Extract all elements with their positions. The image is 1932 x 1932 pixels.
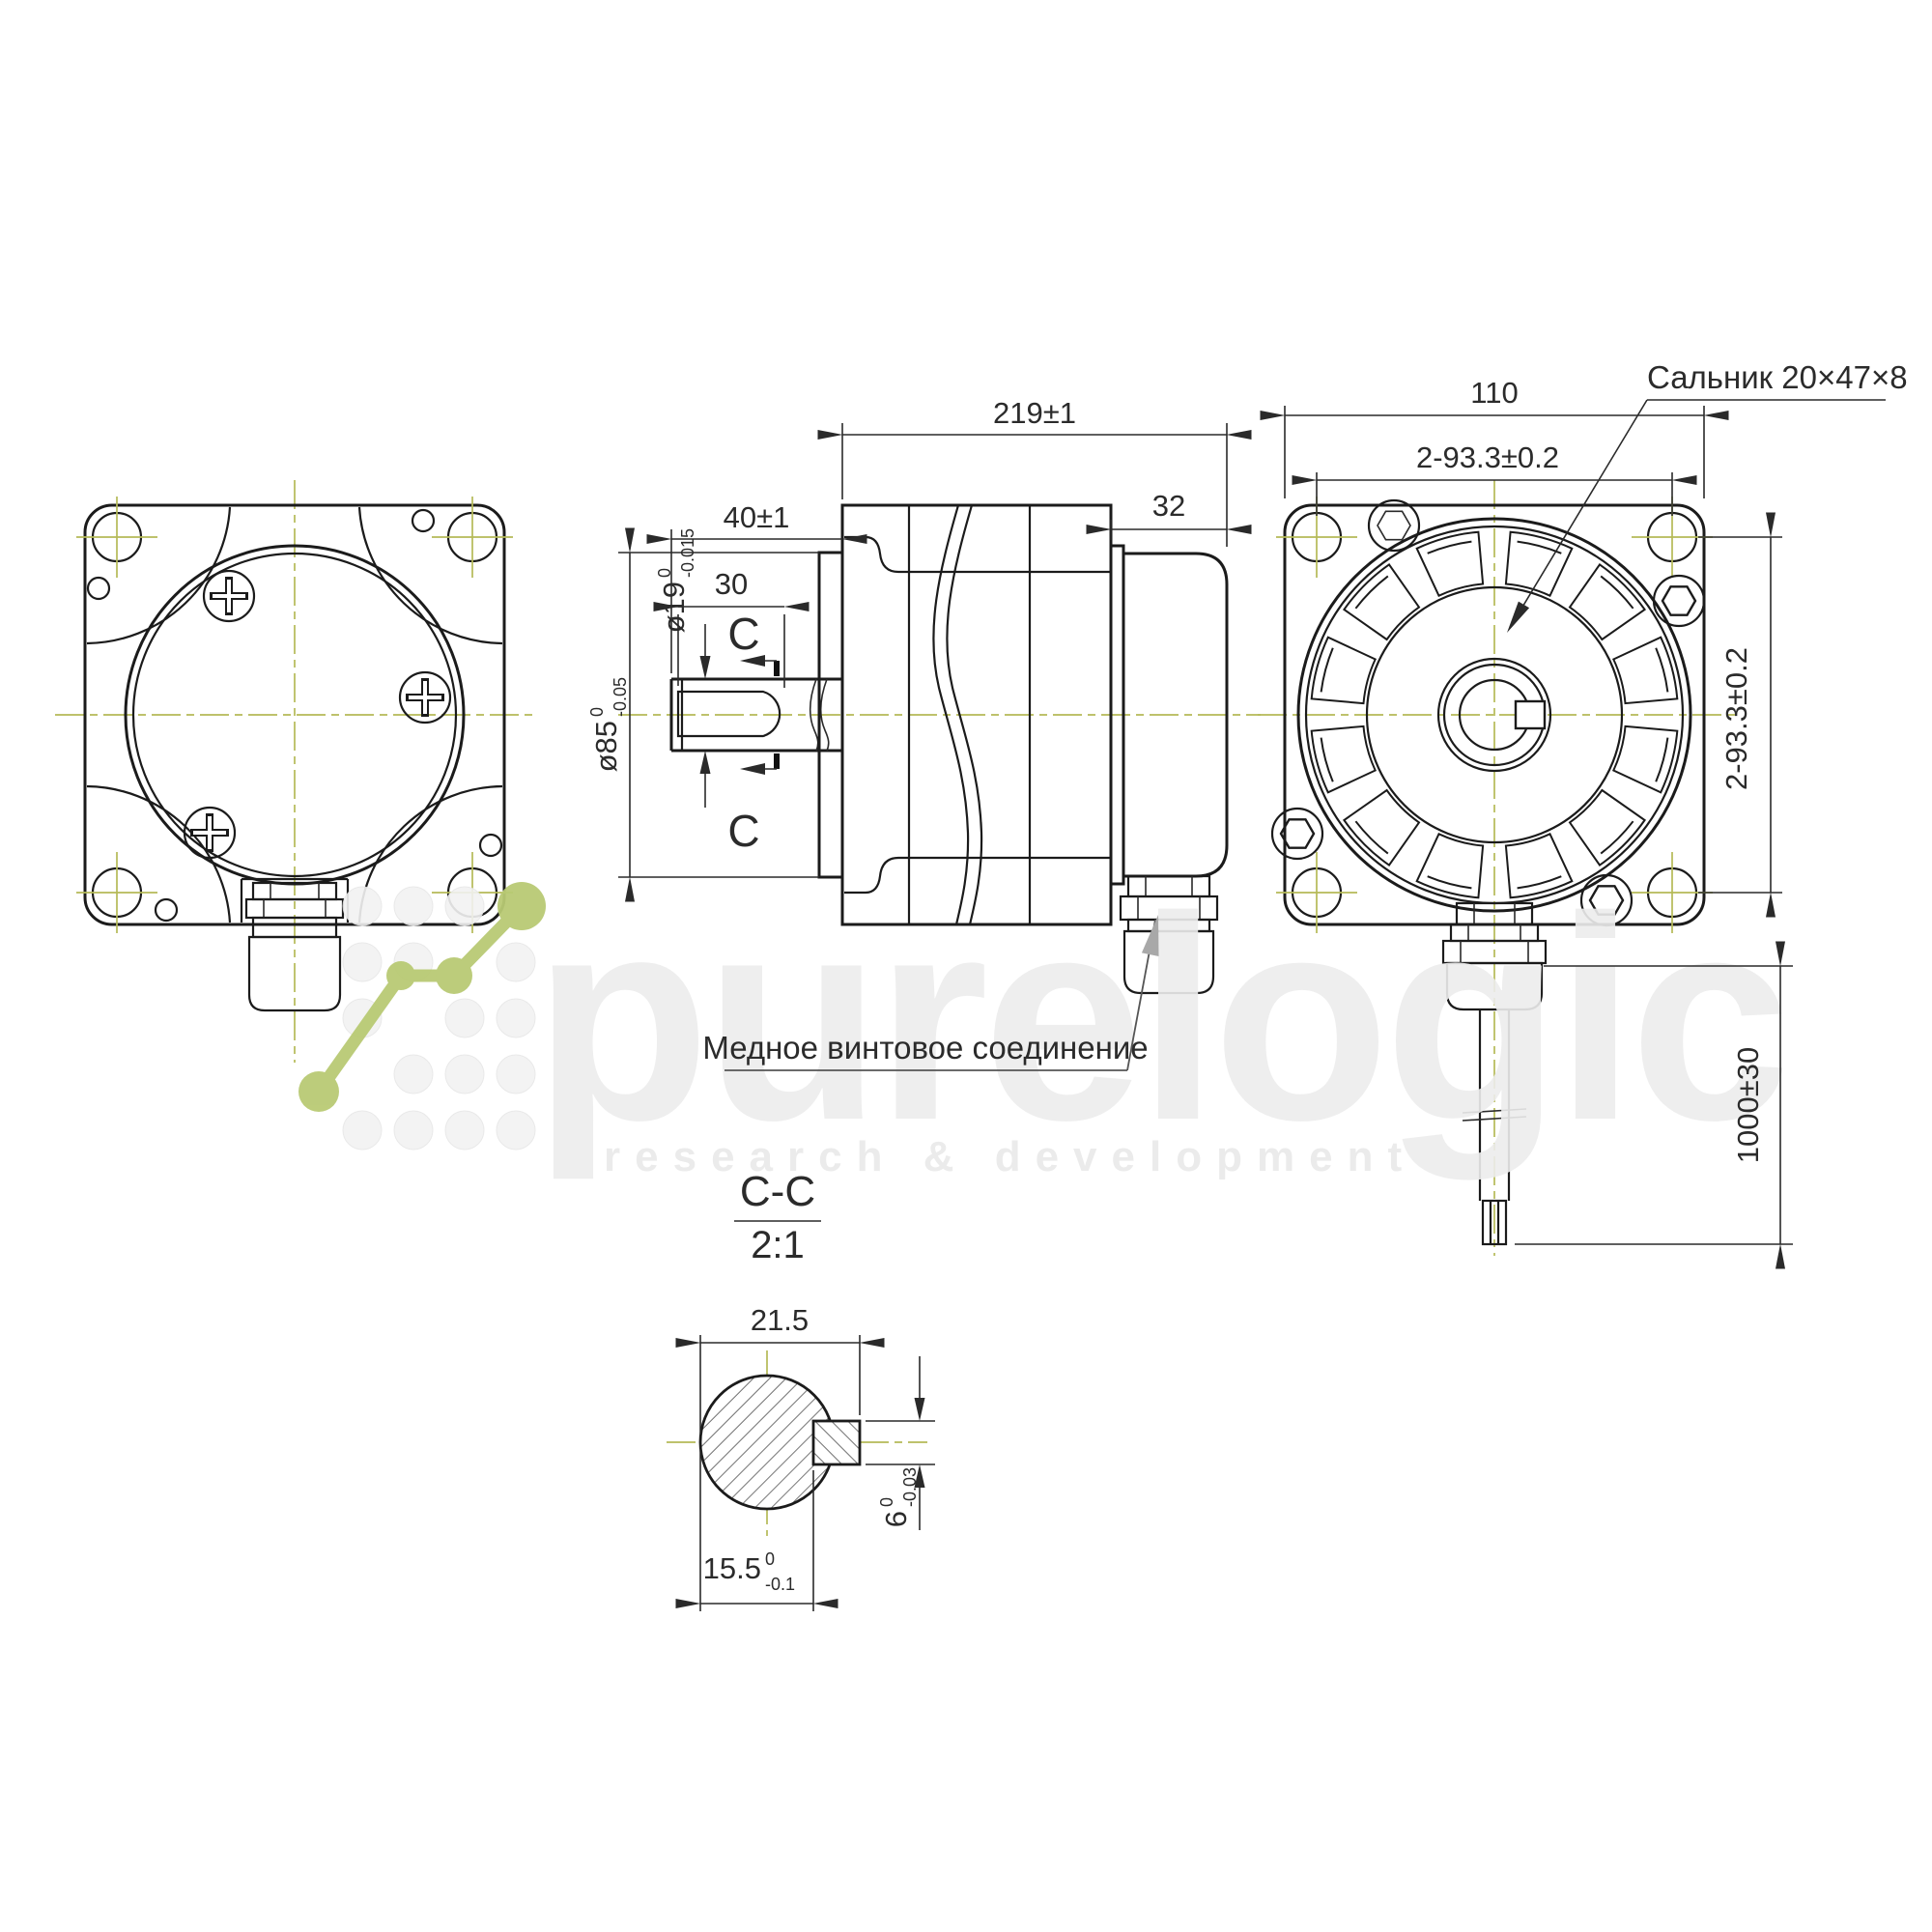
- drawing-canvas: C C 219±1 40±1 30 32: [0, 0, 1932, 1932]
- dim-key-height: 6 0 -0.03: [866, 1356, 935, 1530]
- svg-text:0: 0: [765, 1549, 775, 1569]
- dim-shaft-dia: ø19 0 -0.015: [655, 528, 711, 808]
- cut-letter-bottom: C: [727, 806, 759, 856]
- svg-text:-0.05: -0.05: [611, 677, 630, 717]
- section-scale: 2:1: [751, 1224, 805, 1266]
- seal-leader-arrow: [1507, 602, 1529, 633]
- svg-text:2-93.3±0.2: 2-93.3±0.2: [1719, 647, 1753, 790]
- keyway-slot: [678, 692, 780, 736]
- key-section: [813, 1421, 860, 1464]
- corner-contour-tl: [87, 507, 230, 643]
- svg-text:110: 110: [1470, 376, 1518, 410]
- dim-rear-cap: 32: [1111, 489, 1227, 540]
- section-view: C-C 2:1 21.5 15.5 0 -0.1 6: [700, 1168, 935, 1611]
- watermark: purelogic research & development: [298, 856, 1785, 1182]
- svg-text:219±1: 219±1: [993, 396, 1076, 430]
- key-pocket: [1516, 701, 1545, 728]
- cut-letter-top: C: [727, 609, 759, 659]
- connection-label: Медное винтовое соединение: [702, 1030, 1148, 1065]
- svg-text:32: 32: [1152, 489, 1185, 523]
- svg-text:2-93.3±0.2: 2-93.3±0.2: [1416, 440, 1559, 474]
- svg-text:ø19: ø19: [657, 582, 691, 633]
- svg-text:15.5: 15.5: [703, 1551, 761, 1585]
- watermark-tagline: research & development: [604, 1133, 1416, 1180]
- svg-text:40±1: 40±1: [724, 500, 790, 534]
- svg-text:ø85: ø85: [589, 721, 623, 772]
- watermark-text: purelogic research & development: [533, 856, 1785, 1182]
- motor-technical-drawing: C C 219±1 40±1 30 32: [0, 0, 1932, 1932]
- svg-text:-0.03: -0.03: [900, 1467, 920, 1507]
- seal-annotation: Сальник 20×47×8: [1507, 359, 1908, 633]
- svg-text:1000±30: 1000±30: [1731, 1047, 1765, 1163]
- dim-overall-length: 219±1: [842, 396, 1227, 547]
- svg-text:0: 0: [655, 568, 674, 578]
- svg-text:21.5: 21.5: [751, 1303, 809, 1337]
- svg-text:0: 0: [877, 1497, 896, 1507]
- svg-text:30: 30: [715, 567, 748, 601]
- svg-text:6: 6: [879, 1511, 913, 1527]
- svg-text:-0.1: -0.1: [765, 1575, 795, 1594]
- seal-label: Сальник 20×47×8: [1647, 359, 1908, 395]
- svg-text:0: 0: [587, 707, 607, 717]
